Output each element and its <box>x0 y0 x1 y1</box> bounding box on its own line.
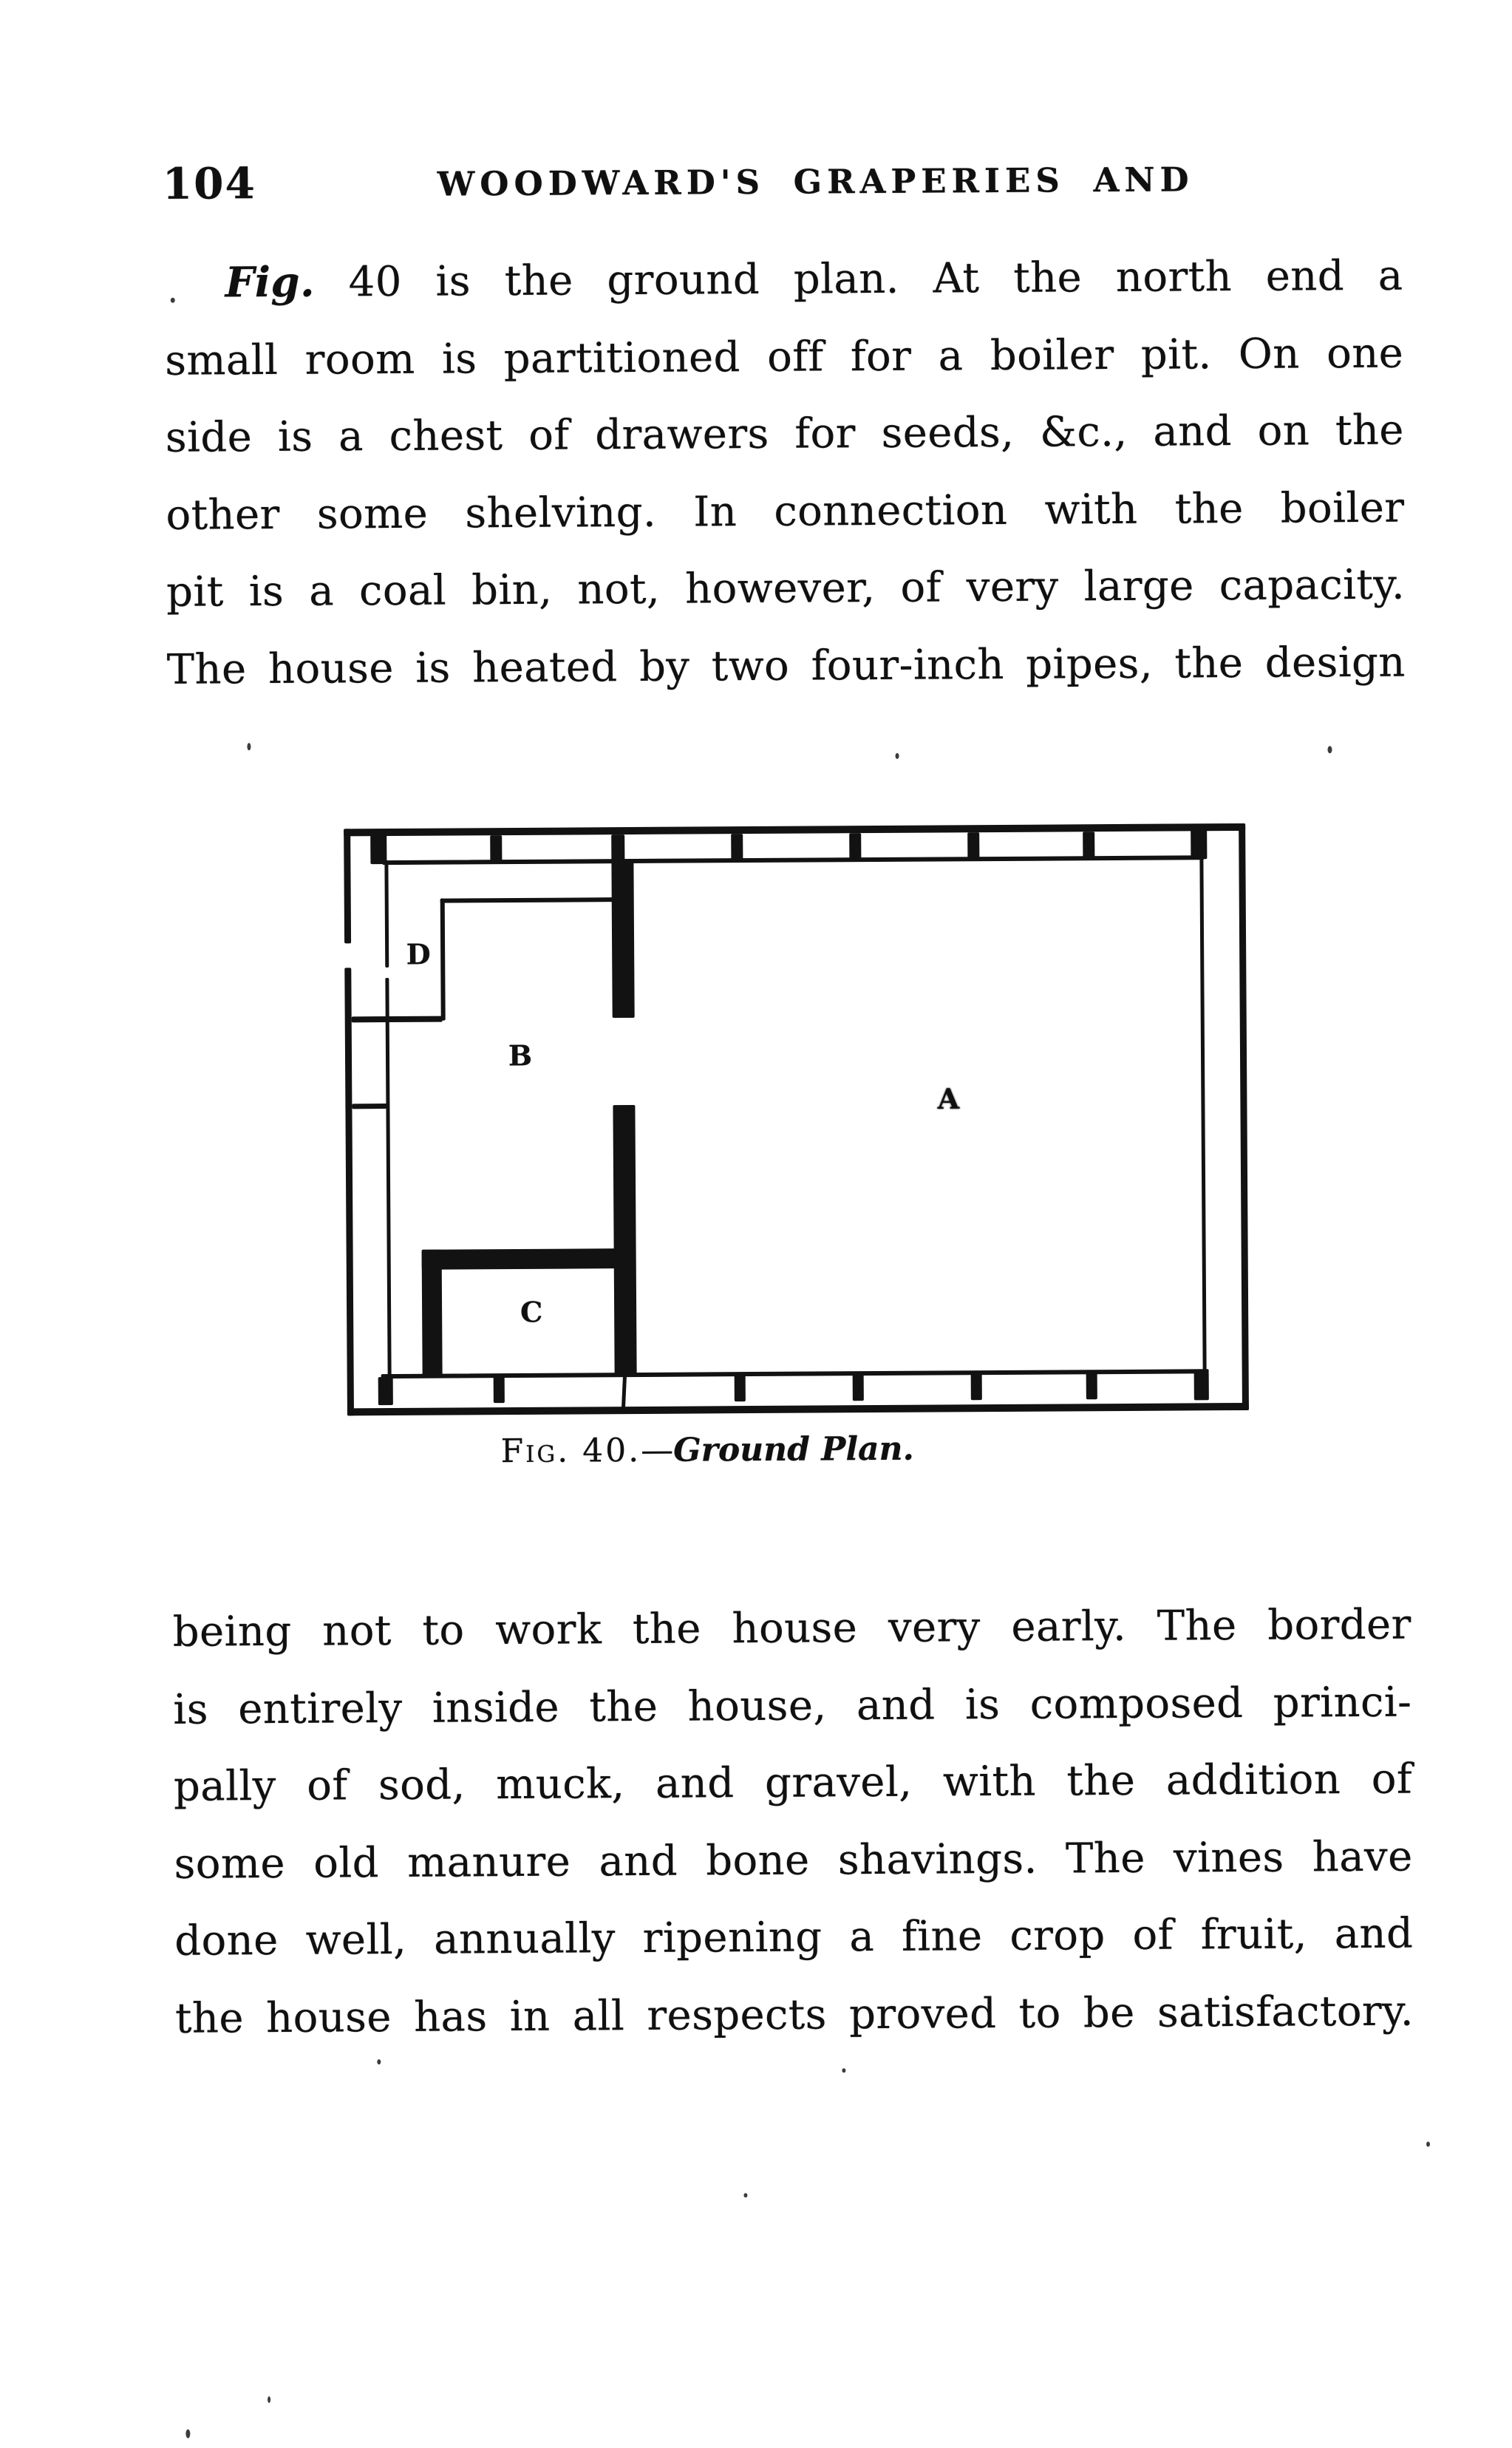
running-header: WOODWARD'S GRAPERIES AND <box>437 160 1132 204</box>
plan-top-tick <box>967 832 979 860</box>
ink-speck <box>896 753 899 759</box>
ink-speck <box>247 743 251 750</box>
ink-speck <box>268 2396 270 2403</box>
plan-top-tick <box>731 834 743 862</box>
plan-label-a: A <box>937 1082 959 1115</box>
text-line: The house is heated by two four-inch pip… <box>166 624 1406 709</box>
ink-speck <box>1426 2141 1430 2146</box>
page-content: 104 WOODWARD'S GRAPERIES AND Fig. 40 is … <box>0 0 1512 2448</box>
text-line: side is a chest of drawers for seeds, &c… <box>166 392 1405 477</box>
plan-top-tick <box>611 834 624 863</box>
figure-reference-lead: Fig. <box>225 258 315 307</box>
ground-plan-figure: A B C D <box>344 823 1249 1417</box>
plan-room-d-sill <box>352 1016 443 1023</box>
text-line: being not to work the house very early. … <box>172 1587 1411 1672</box>
figure-caption-number: Fig. 40. <box>500 1432 641 1470</box>
text-line: other some shelving. In connection with … <box>166 469 1405 554</box>
ink-speck <box>377 2059 381 2064</box>
plan-bottom-tick <box>494 1376 505 1403</box>
plan-label-b: B <box>508 1038 532 1072</box>
paragraph-2: being not to work the house very early. … <box>172 1587 1414 2058</box>
plan-bottom-tick <box>971 1373 982 1400</box>
text-line: Fig. 40 is the ground plan. At the north… <box>164 237 1403 323</box>
paragraph-1: Fig. 40 is the ground plan. At the north… <box>164 237 1406 709</box>
plan-partition-wall-lower <box>613 1105 636 1376</box>
plan-outer-wall-top <box>344 823 1245 836</box>
figure-caption: Fig. 40.—Ground Plan. <box>375 1429 1040 1471</box>
plan-top-tick <box>849 833 861 861</box>
figure-caption-title: Ground Plan. <box>673 1430 914 1469</box>
plan-bottom-tick <box>378 1377 393 1405</box>
text-line: is entirely inside the house, and is com… <box>173 1664 1412 1749</box>
ink-speck <box>842 2068 845 2073</box>
ink-speck <box>743 2193 747 2197</box>
plan-inner-line-right <box>1199 855 1206 1373</box>
plan-coal-bin-wall-top <box>422 1248 616 1270</box>
text-line: pit is a coal bin, not, however, of very… <box>166 547 1406 632</box>
plan-bottom-tick <box>735 1375 746 1401</box>
plan-outer-wall-right <box>1239 823 1249 1410</box>
plan-bottom-tick <box>1086 1373 1097 1399</box>
ink-speck <box>171 298 175 303</box>
plan-inner-line-left-lower <box>385 978 391 1378</box>
plan-top-tick <box>1083 832 1094 860</box>
text-line: done well, annually ripening a fine crop… <box>174 1896 1414 1981</box>
plan-inner-line-left-upper <box>384 860 389 968</box>
page-number: 104 <box>163 158 256 209</box>
ink-speck <box>1327 746 1332 753</box>
plan-outer-wall-bottom <box>347 1403 1249 1415</box>
plan-top-tick <box>370 834 386 864</box>
plan-inner-line-top <box>382 855 1204 865</box>
plan-room-d-partition-vertical <box>440 899 446 1021</box>
plan-outer-wall-left-lower <box>344 968 354 1415</box>
plan-outer-wall-left-upper <box>344 829 351 943</box>
plan-bottom-tick <box>1194 1372 1209 1400</box>
plan-label-c: C <box>520 1295 543 1328</box>
plan-coal-bin-wall-left <box>422 1250 443 1376</box>
plan-label-d: D <box>406 937 431 970</box>
plan-left-door-sill <box>352 1104 387 1109</box>
plan-inner-line-bottom <box>381 1369 1209 1378</box>
book-page: 104 WOODWARD'S GRAPERIES AND Fig. 40 is … <box>0 0 1512 2448</box>
text-line-rest: 40 is the ground plan. At the north end … <box>315 252 1403 307</box>
plan-room-d-partition-horizontal <box>440 897 614 902</box>
text-line: small room is partitioned off for a boil… <box>165 315 1404 400</box>
text-line: pally of sod, muck, and gravel, with the… <box>174 1741 1413 1826</box>
text-line: some old manure and bone shavings. The v… <box>174 1818 1413 1903</box>
plan-partition-wall-upper <box>611 860 634 1018</box>
figure-caption-dash: — <box>641 1432 673 1469</box>
ink-speck <box>185 2430 190 2438</box>
plan-bottom-tick <box>853 1374 864 1401</box>
text-line: the house has in all respects proved to … <box>175 1973 1414 2058</box>
plan-top-tick <box>1191 829 1207 859</box>
plan-top-tick <box>490 835 502 863</box>
